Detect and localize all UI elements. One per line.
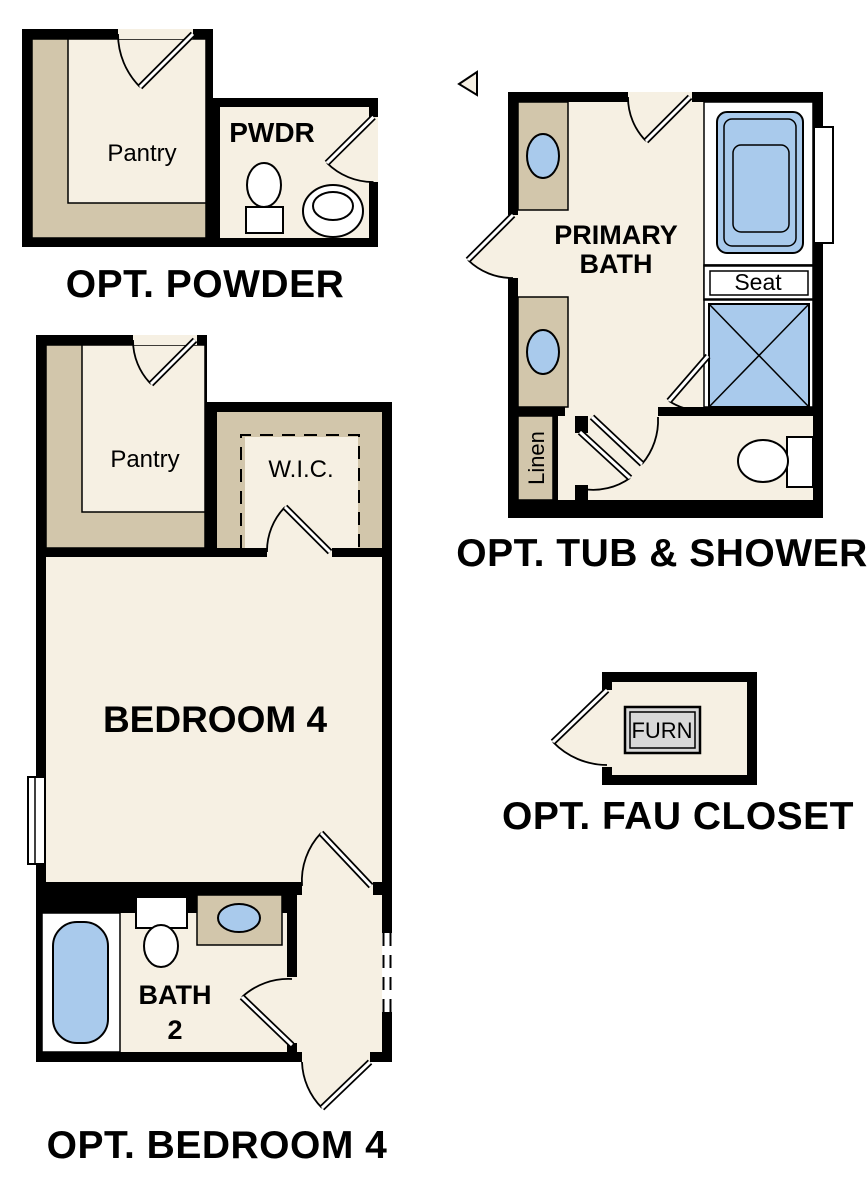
linen-label: Linen xyxy=(524,431,549,485)
hall-exterior-door-swing xyxy=(302,1062,370,1108)
bedroom4-label: BEDROOM 4 xyxy=(103,699,328,740)
floorplan-options-sheet: Pantry PWDR OPT. POWDER xyxy=(0,0,867,1190)
bath2-label-line1: BATH xyxy=(139,980,212,1010)
primary-bath-label-line2: BATH xyxy=(580,249,653,279)
bathtub-fixture xyxy=(717,112,803,253)
bath-window xyxy=(814,127,833,243)
opt-bedroom4-title: OPT. BEDROOM 4 xyxy=(47,1124,388,1167)
fau-door-swing xyxy=(553,690,607,765)
pwdr-label: PWDR xyxy=(229,117,315,148)
pantry2-label: Pantry xyxy=(110,446,179,473)
bath2-label-line2: 2 xyxy=(167,1015,182,1045)
bedroom-window xyxy=(28,777,45,864)
plan-opt-tub-shower: Linen Seat PRIMARY BATH OPT. TUB & SHOWE… xyxy=(456,72,867,575)
opt-powder-title: OPT. POWDER xyxy=(66,263,345,306)
wic-floor xyxy=(245,437,358,548)
primary-bath-label-line1: PRIMARY xyxy=(554,220,678,250)
bath2-vanity-sink xyxy=(197,895,282,945)
bath-entry-door-swing xyxy=(468,215,513,278)
vanity-sink-bottom xyxy=(518,297,568,407)
chevron-fragment xyxy=(459,72,477,95)
opt-tub-shower-title: OPT. TUB & SHOWER xyxy=(456,532,867,575)
hallway-floor xyxy=(297,895,382,1052)
cased-opening-dashed xyxy=(382,933,392,1012)
pantry-label: Pantry xyxy=(107,140,176,167)
wic-label: W.I.C. xyxy=(268,456,333,483)
seat-label: Seat xyxy=(734,269,782,295)
plan-opt-fau-closet: FURN OPT. FAU CLOSET xyxy=(502,672,854,838)
plan-opt-powder: Pantry PWDR OPT. POWDER xyxy=(22,29,378,306)
toilet-fixture xyxy=(303,185,363,237)
tub-fixture xyxy=(42,913,120,1052)
opt-fau-closet-title: OPT. FAU CLOSET xyxy=(502,795,854,838)
furn-label: FURN xyxy=(631,718,692,743)
shower-fixture xyxy=(709,304,809,407)
vanity-sink-top xyxy=(518,102,568,210)
wc-toilet-fixture xyxy=(738,437,813,487)
pantry2-floor xyxy=(82,345,205,512)
plan-opt-bedroom4: Pantry W.I.C. BEDROOM 4 BATH 2 OPT. BEDR… xyxy=(28,335,392,1167)
pantry-floor xyxy=(68,39,206,203)
pedestal-sink-fixture xyxy=(246,163,283,233)
